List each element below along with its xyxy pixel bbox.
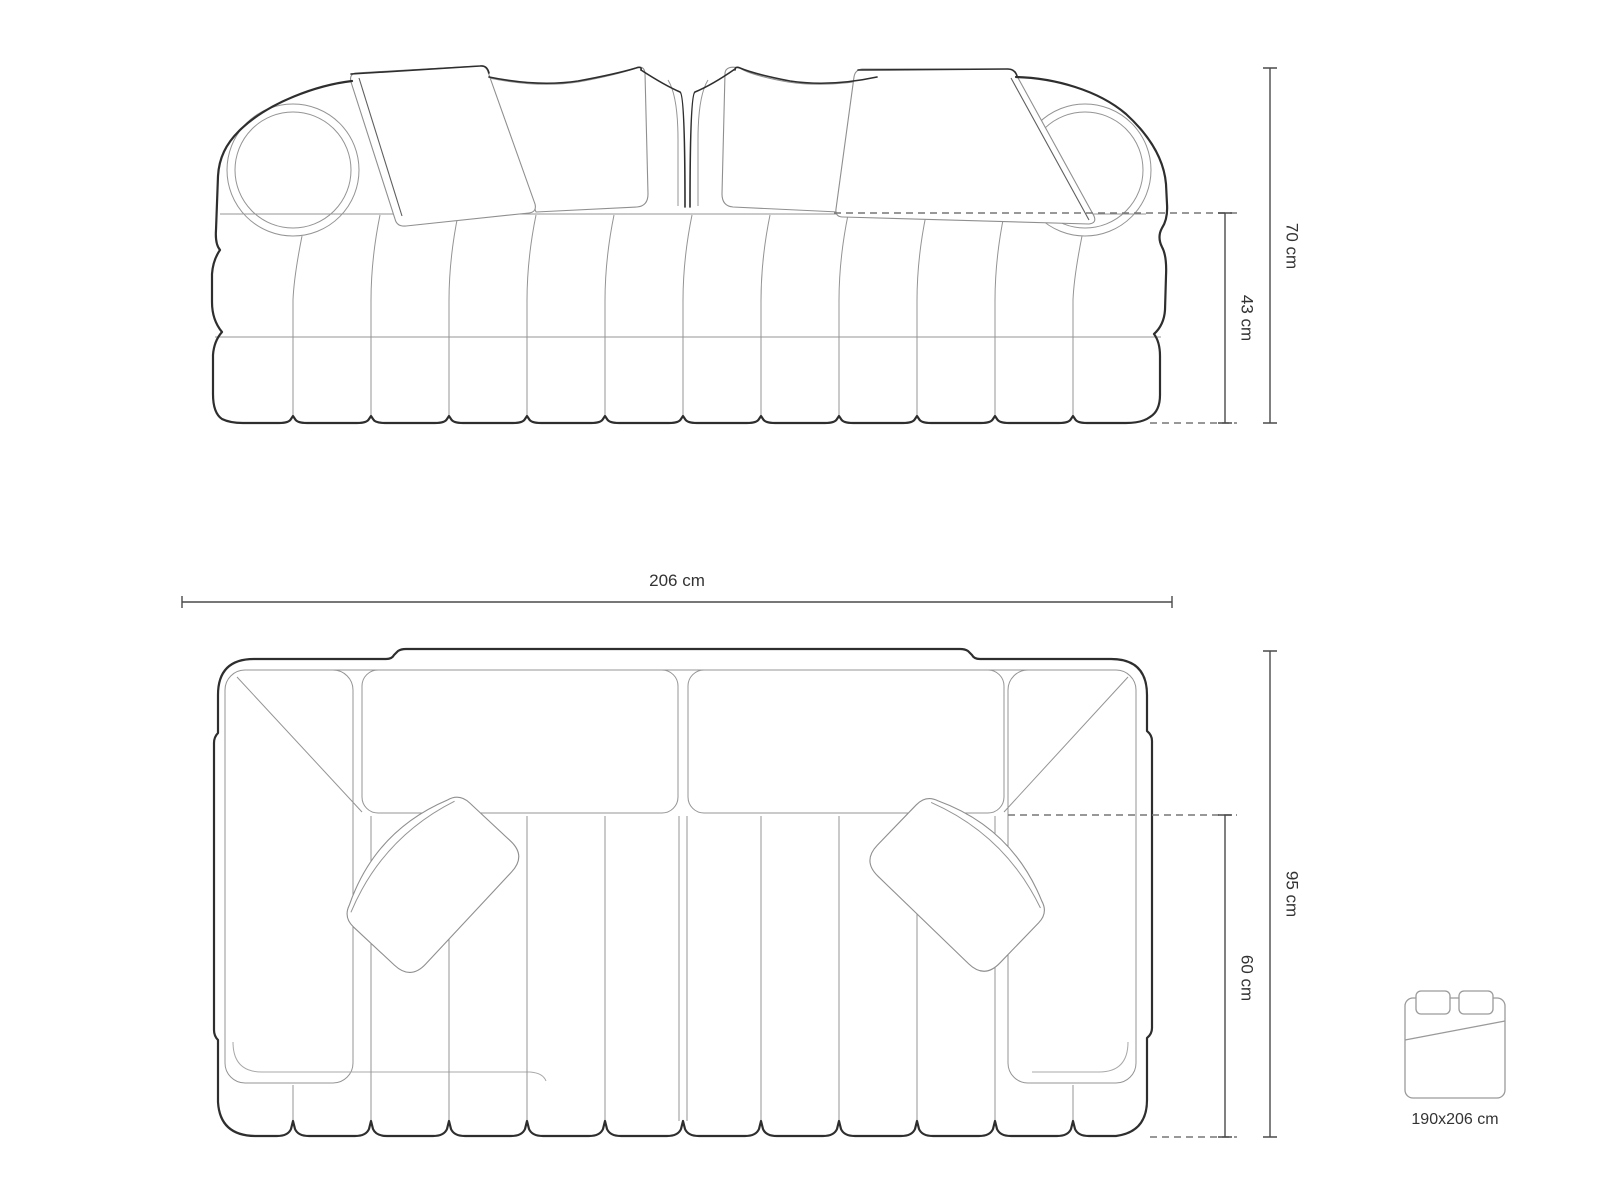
bed-pillow-left — [1416, 991, 1450, 1014]
top-view — [214, 649, 1237, 1137]
throw-pillow-right — [862, 780, 1062, 979]
backrest-cushion-right — [688, 670, 1004, 813]
seat-depth-label: 60 cm — [1238, 955, 1257, 1001]
sofa-dimensions-diagram: 70 cm 43 cm 206 cm — [0, 0, 1600, 1200]
width-label: 206 cm — [649, 571, 705, 590]
left-seat-front-piping — [233, 1042, 546, 1081]
seat-height-dimension-line — [1218, 213, 1232, 423]
channel-seams-front — [293, 215, 1082, 417]
left-arm-diagonal — [237, 677, 362, 812]
pillow-right-front — [836, 69, 1095, 224]
top-dimensions: 95 cm 60 cm — [1218, 651, 1302, 1137]
height-dimension-line — [1263, 68, 1277, 423]
backrest-cushion-left — [362, 670, 678, 813]
left-bolster-inner — [235, 112, 351, 228]
bed-size-icon: 190x206 cm — [1405, 991, 1505, 1128]
backrest-left-edge — [668, 80, 678, 206]
seat-depth-dimension-line — [1218, 815, 1232, 1137]
front-dimensions: 70 cm 43 cm — [1218, 68, 1302, 423]
right-arm-diagonal — [1004, 677, 1128, 812]
backrest-right-edge — [698, 80, 708, 206]
left-armrest-panel — [225, 670, 353, 1083]
right-seat-front-piping — [1032, 1042, 1128, 1072]
width-dimension: 206 cm — [182, 571, 1172, 608]
bed-pillow-right — [1459, 991, 1493, 1014]
depth-dimension-line — [1263, 651, 1277, 1137]
depth-label: 95 cm — [1283, 871, 1302, 917]
seat-height-label: 43 cm — [1238, 295, 1257, 341]
sleeping-area-label: 190x206 cm — [1411, 1111, 1498, 1128]
diagram-canvas: 70 cm 43 cm 206 cm — [0, 0, 1600, 1200]
front-view — [212, 66, 1237, 423]
throw-pillow-left — [329, 780, 527, 981]
height-label: 70 cm — [1283, 223, 1302, 269]
width-dimension-line — [182, 596, 1172, 608]
